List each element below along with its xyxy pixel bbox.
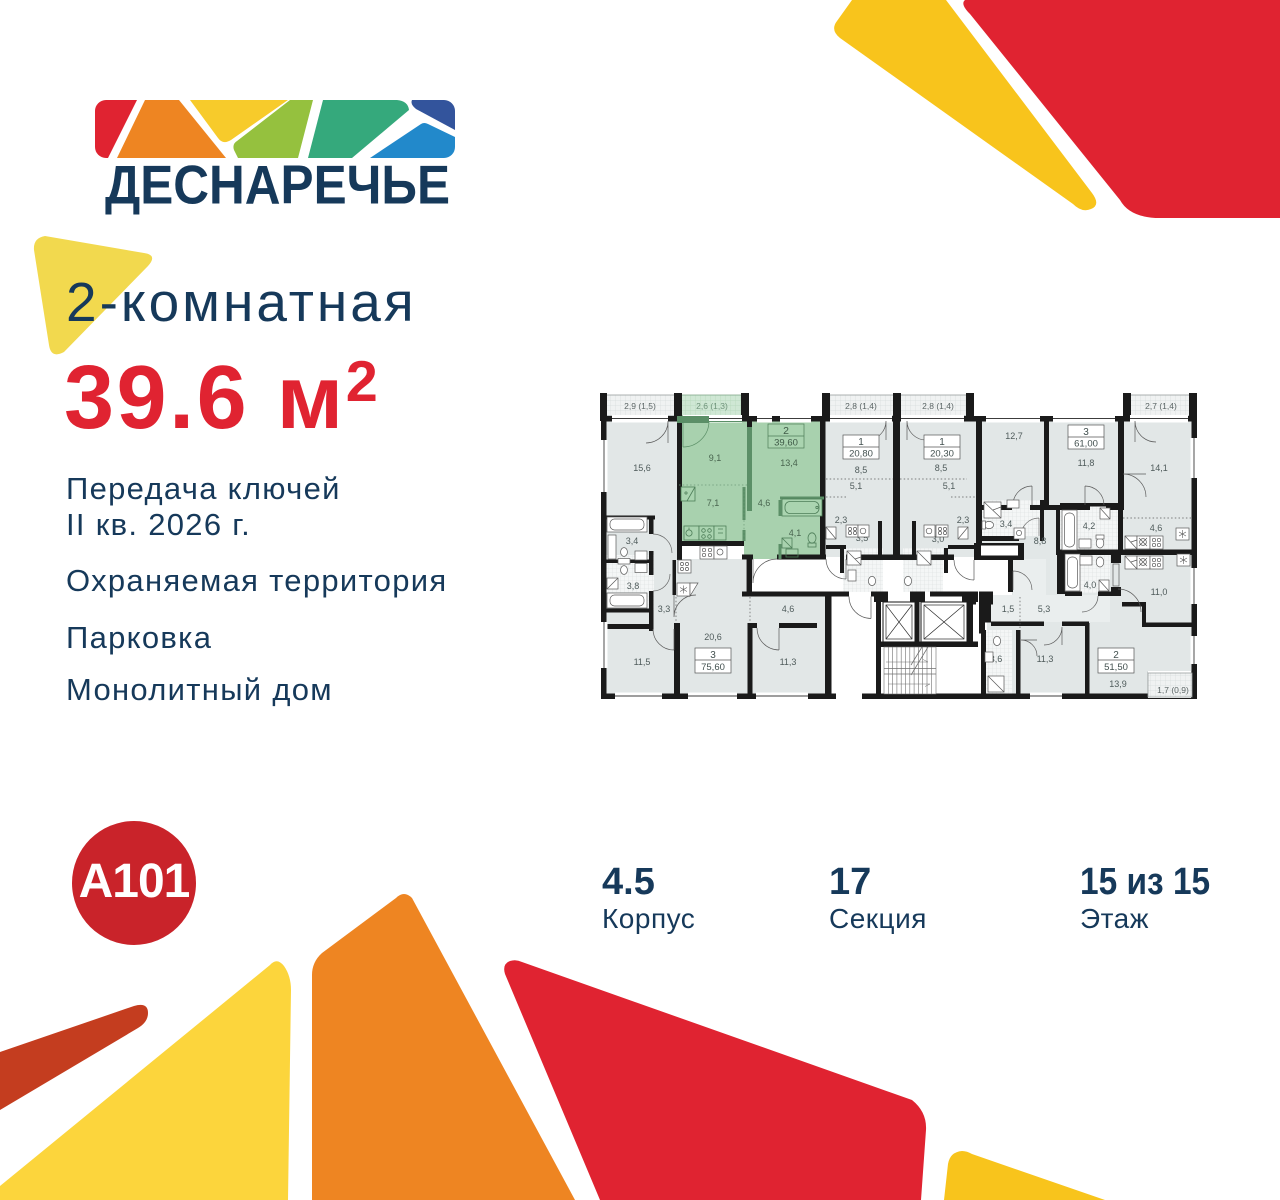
svg-text:11,8: 11,8 [1078, 458, 1095, 468]
svg-text:3: 3 [710, 650, 716, 661]
svg-text:2,7 (1,4): 2,7 (1,4) [1145, 401, 1177, 411]
svg-text:2,6 (1,3): 2,6 (1,3) [696, 401, 728, 411]
svg-text:5,1: 5,1 [943, 481, 956, 491]
svg-text:2: 2 [1113, 650, 1119, 661]
svg-text:11,3: 11,3 [1037, 654, 1054, 664]
svg-text:ДЕСНАРЕЧЬЕ: ДЕСНАРЕЧЬЕ [105, 155, 450, 215]
svg-text:4,1: 4,1 [789, 528, 802, 538]
svg-text:51,50: 51,50 [1104, 662, 1128, 673]
svg-text:4,6: 4,6 [1150, 523, 1163, 533]
svg-text:20,6: 20,6 [704, 632, 722, 642]
svg-text:20,80: 20,80 [849, 449, 873, 460]
svg-text:3,8: 3,8 [627, 581, 640, 591]
svg-text:20,30: 20,30 [930, 449, 954, 460]
svg-text:2,8 (1,4): 2,8 (1,4) [845, 401, 877, 411]
svg-text:13,9: 13,9 [1109, 679, 1127, 689]
svg-text:2,3: 2,3 [835, 515, 848, 525]
svg-text:3,3: 3,3 [658, 604, 671, 614]
svg-text:39,60: 39,60 [774, 438, 798, 449]
svg-text:12,7: 12,7 [1005, 431, 1023, 441]
svg-text:3,4: 3,4 [1000, 519, 1013, 529]
svg-text:8,8: 8,8 [1034, 536, 1047, 546]
svg-text:13,4: 13,4 [780, 458, 798, 468]
svg-text:8,5: 8,5 [935, 463, 948, 473]
svg-text:15,6: 15,6 [633, 463, 651, 473]
svg-text:2,3: 2,3 [957, 515, 970, 525]
svg-text:75,60: 75,60 [701, 662, 725, 673]
svg-text:61,00: 61,00 [1074, 439, 1098, 450]
svg-text:2,8 (1,4): 2,8 (1,4) [922, 401, 954, 411]
svg-text:9,1: 9,1 [709, 453, 722, 463]
svg-text:1: 1 [939, 437, 945, 448]
svg-text:4,0: 4,0 [1084, 580, 1097, 590]
svg-text:1: 1 [858, 437, 864, 448]
svg-text:7,1: 7,1 [707, 498, 720, 508]
svg-text:5,3: 5,3 [1038, 604, 1051, 614]
svg-text:1,5: 1,5 [1002, 604, 1015, 614]
svg-text:8,5: 8,5 [855, 465, 868, 475]
svg-text:5,1: 5,1 [850, 481, 863, 491]
svg-text:3,4: 3,4 [626, 536, 639, 546]
svg-text:2,9 (1,5): 2,9 (1,5) [624, 401, 656, 411]
svg-text:1,7 (0,9): 1,7 (0,9) [1157, 685, 1189, 695]
svg-text:4,2: 4,2 [1083, 521, 1096, 531]
svg-text:11,5: 11,5 [634, 657, 651, 667]
svg-text:4,6: 4,6 [782, 604, 795, 614]
svg-text:11,0: 11,0 [1151, 587, 1168, 597]
svg-text:3: 3 [1083, 427, 1089, 438]
svg-text:2: 2 [783, 425, 789, 437]
svg-text:4,6: 4,6 [758, 498, 771, 508]
svg-text:11,3: 11,3 [780, 657, 797, 667]
svg-text:14,1: 14,1 [1150, 463, 1168, 473]
